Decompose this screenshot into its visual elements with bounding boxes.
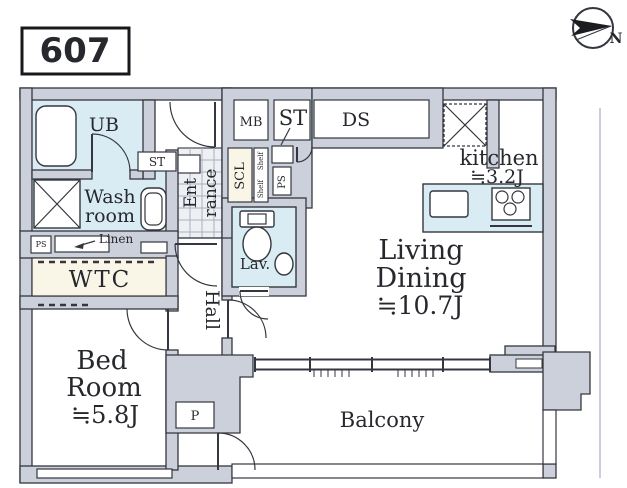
kitchen-size-label: ≒3.2J xyxy=(470,166,524,188)
ps-washroom-label: PS xyxy=(36,240,47,249)
living-label-line1: Living xyxy=(378,235,463,266)
bedroom-label-line1: Bed xyxy=(76,346,127,376)
entrance-label-line1: Ent xyxy=(181,178,201,208)
wall-slot-window xyxy=(516,359,542,368)
st-washroom-label: ST xyxy=(149,155,165,169)
shelf-label-2: Shelf xyxy=(257,178,265,198)
shelf-label-1: Shelf xyxy=(257,150,265,170)
wtc-label: WTC xyxy=(69,267,132,293)
washroom-step-box xyxy=(141,242,167,253)
stove-icon xyxy=(490,188,532,226)
balcony-rail-bottom xyxy=(232,464,543,478)
storage-small-box xyxy=(272,146,293,163)
unit-number: 607 xyxy=(40,31,111,71)
lavatory-label: Lav. xyxy=(240,255,270,273)
balcony-label: Balcony xyxy=(340,408,425,432)
duct-space-box xyxy=(314,100,429,138)
balcony-rail-right xyxy=(543,410,556,464)
bedroom-label-line2: Room xyxy=(66,373,142,403)
bedroom-size-label: ≒5.8J xyxy=(71,401,139,429)
entrance-label-line2: rance xyxy=(201,169,221,218)
ps-corridor-label: PS xyxy=(277,175,288,189)
entrance-storage-box xyxy=(178,155,200,173)
washroom-label-line2: room xyxy=(85,205,135,227)
refrigerator-space-icon xyxy=(444,104,486,146)
pillar-label: P xyxy=(191,409,200,424)
floor-plan-canvas: 607 N xyxy=(0,0,627,488)
lav-basin-icon xyxy=(275,253,293,275)
kitchen-sink-icon xyxy=(430,191,468,217)
unit-number-box: 607 xyxy=(22,28,129,74)
bathtub-icon xyxy=(36,106,76,166)
compass-north-label: N xyxy=(610,31,623,47)
st-entrance-label: ST xyxy=(279,106,307,130)
toilet-icon xyxy=(240,211,274,261)
lavatory-room xyxy=(232,207,296,296)
hall-label: Hall xyxy=(201,290,223,330)
living-label-line2: Dining xyxy=(376,263,467,294)
bedroom-window xyxy=(37,469,172,478)
washing-machine-space-icon xyxy=(34,180,80,228)
washbasin-icon xyxy=(141,188,166,230)
linen-label: Linen xyxy=(99,232,134,246)
mb-label: MB xyxy=(240,115,263,130)
living-size-label: ≒10.7J xyxy=(377,291,464,320)
floor-plan: 607 N xyxy=(0,0,627,488)
ub-label: UB xyxy=(89,114,119,136)
scl-label: SCL xyxy=(233,162,248,190)
ds-label: DS xyxy=(342,109,370,131)
